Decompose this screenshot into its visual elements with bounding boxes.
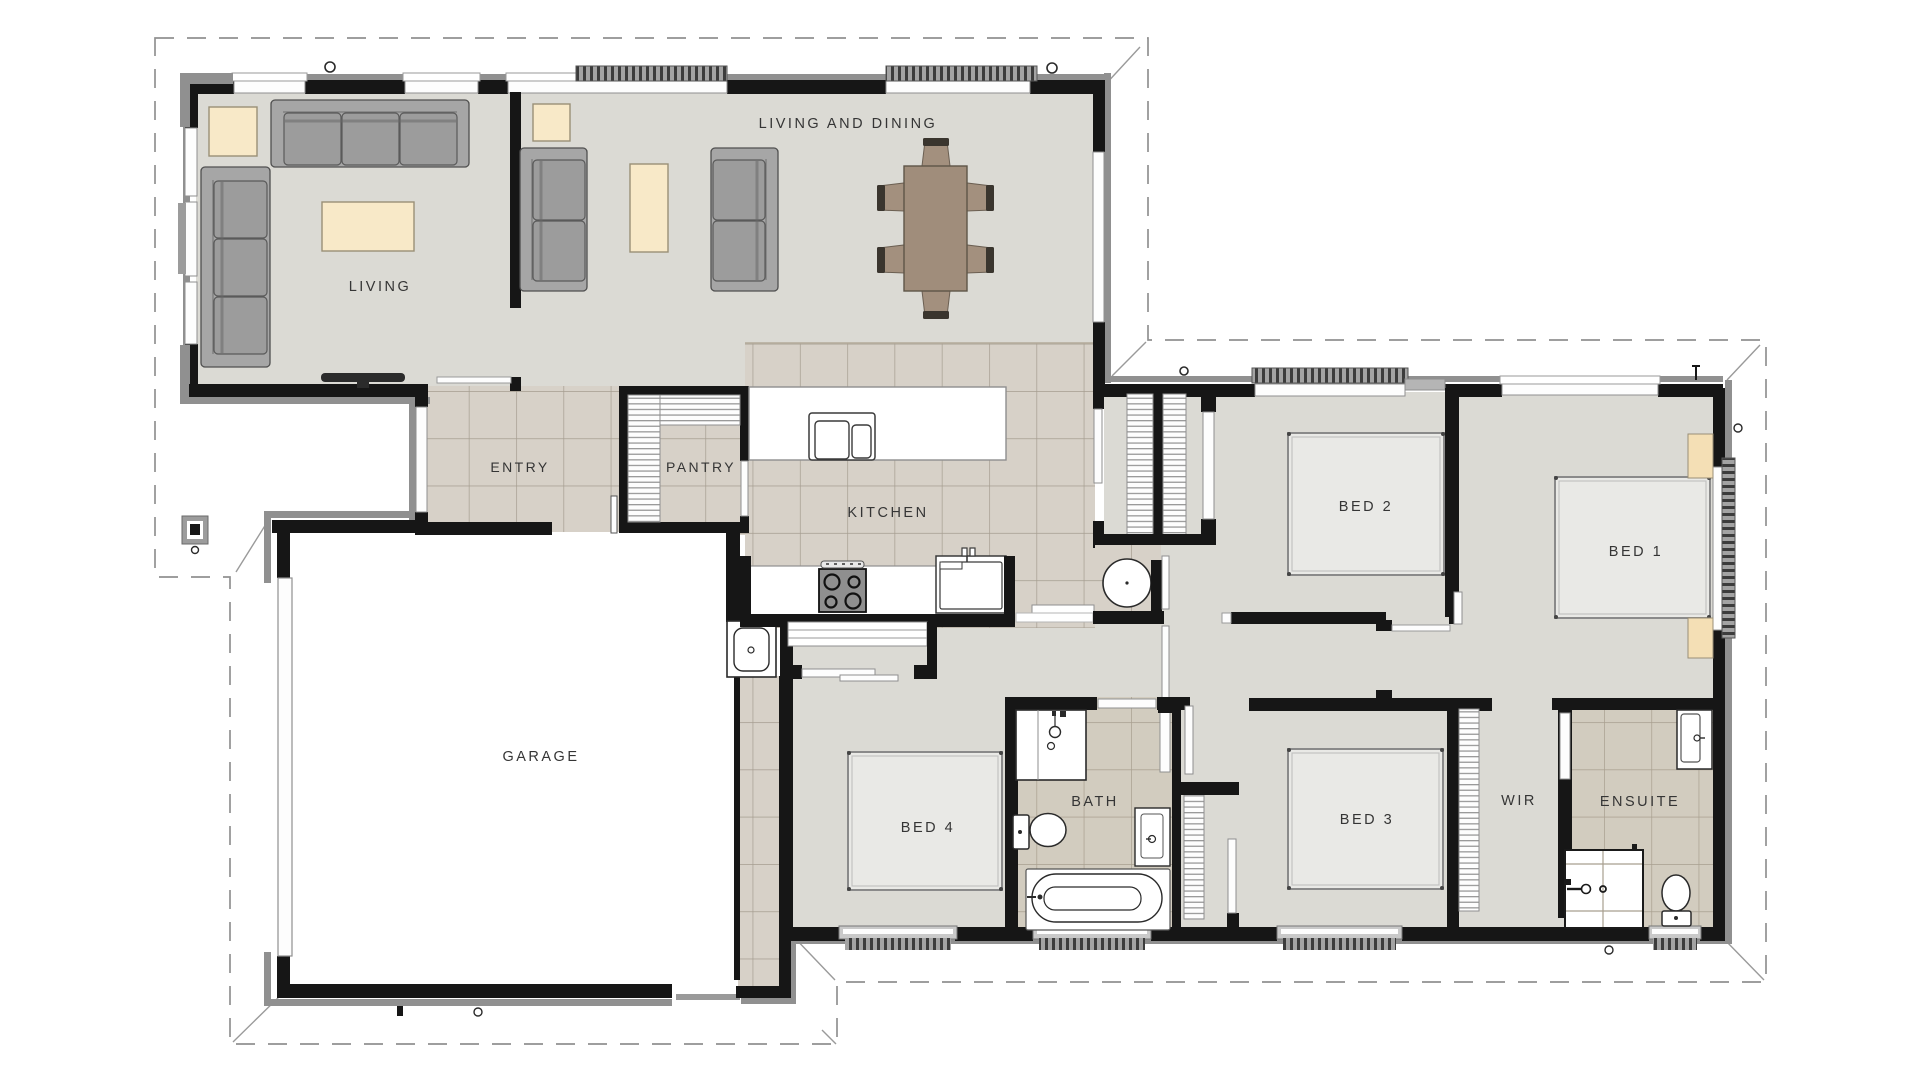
svg-text:GARAGE: GARAGE: [502, 749, 579, 765]
svg-text:BED 1: BED 1: [1609, 544, 1663, 560]
svg-text:WIR: WIR: [1501, 793, 1537, 809]
svg-text:LIVING AND DINING: LIVING AND DINING: [759, 116, 938, 132]
svg-text:KITCHEN: KITCHEN: [847, 505, 928, 521]
svg-text:BED 4: BED 4: [901, 820, 955, 836]
svg-text:ENSUITE: ENSUITE: [1600, 794, 1680, 810]
svg-text:LIVING: LIVING: [349, 279, 412, 295]
svg-text:BED 2: BED 2: [1339, 499, 1393, 515]
svg-text:BED 3: BED 3: [1340, 812, 1394, 828]
svg-text:ENTRY: ENTRY: [490, 459, 549, 475]
svg-text:PANTRY: PANTRY: [666, 459, 736, 475]
svg-text:BATH: BATH: [1071, 794, 1119, 810]
